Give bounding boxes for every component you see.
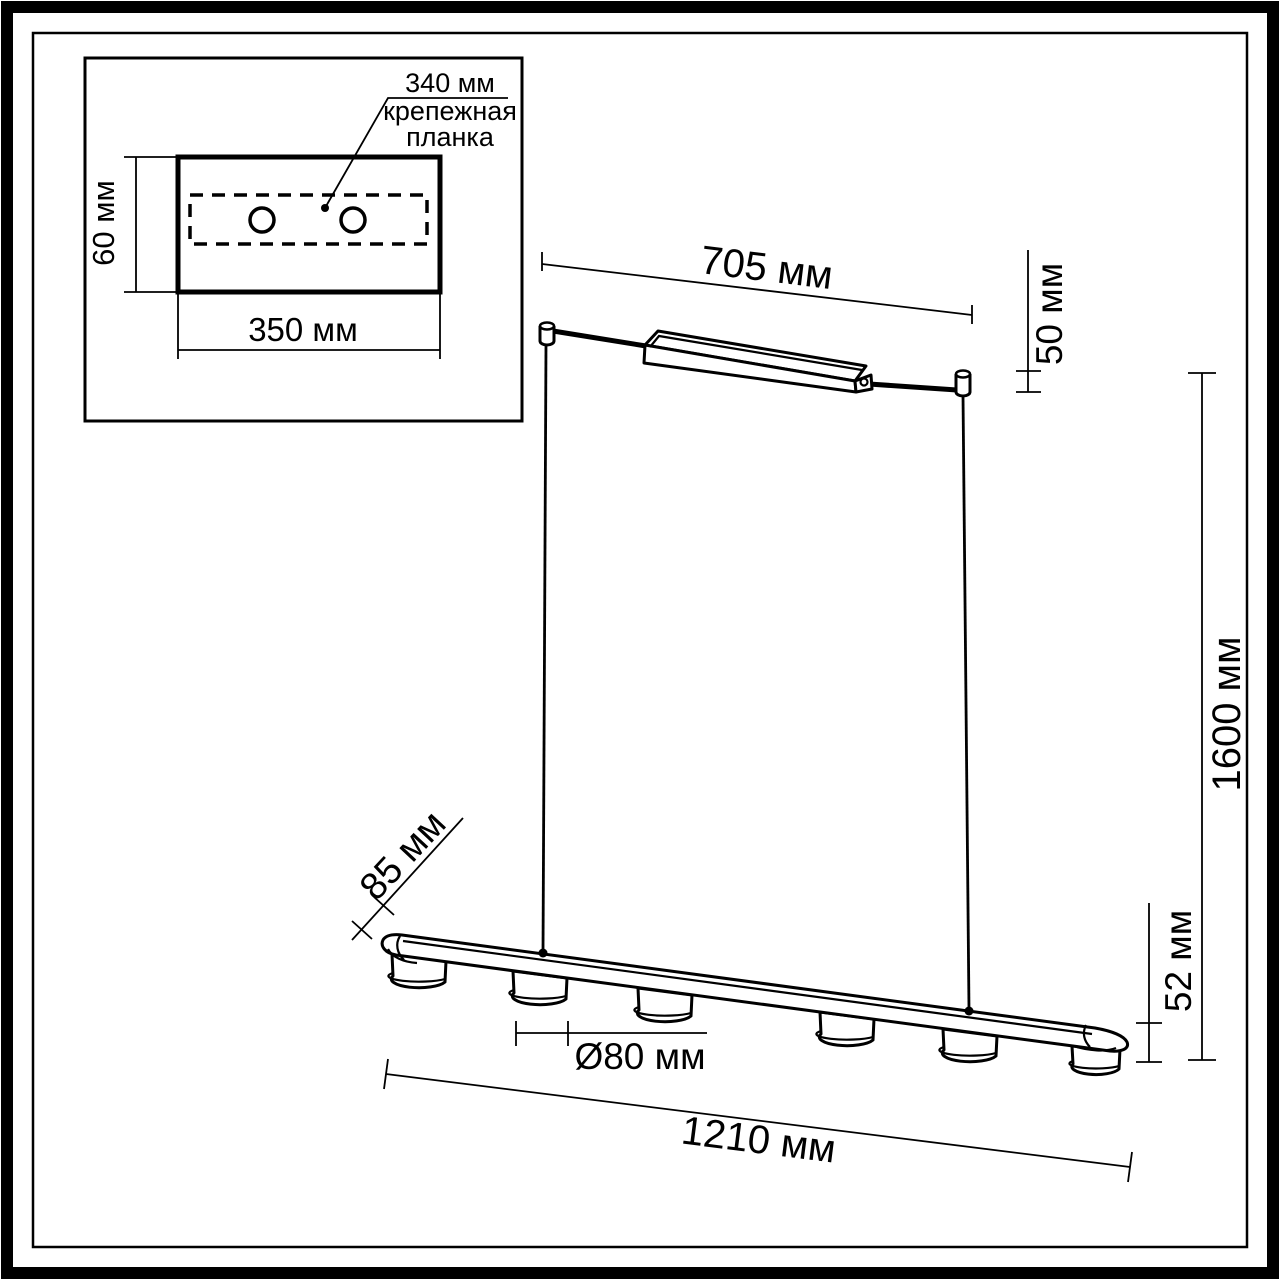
canopy-length-label: 705 мм — [698, 238, 835, 298]
mounting-plate — [178, 157, 440, 292]
suspension-wire-left — [543, 344, 546, 953]
wire-connector-right — [965, 1007, 974, 1016]
mounting-plate-inset: 340 мм крепежная планка 60 мм 350 мм — [85, 58, 522, 421]
lamp-bar-top-edge-line — [403, 941, 1092, 1034]
canopy-rod-right — [869, 384, 957, 390]
fixture-length-label: 1210 мм — [679, 1109, 838, 1172]
fixture-height-label: 52 мм — [1158, 910, 1199, 1012]
fixture-depth-label: 85 мм — [352, 803, 454, 908]
plate-height-label: 60 мм — [86, 180, 121, 266]
ceiling-canopy — [540, 323, 970, 397]
mounting-hole-right — [341, 208, 365, 232]
bracket-caption-line2: планка — [406, 122, 495, 152]
canopy-end-hole — [861, 379, 868, 386]
pendant-fixture — [382, 323, 1127, 1075]
drop-height-label: 1600 мм — [1205, 636, 1249, 791]
pendant-light-dimension-drawing: 340 мм крепежная планка 60 мм 350 мм — [0, 0, 1280, 1280]
canopy-rod-left — [553, 331, 646, 346]
technical-drawing-page: 340 мм крепежная планка 60 мм 350 мм — [0, 0, 1280, 1280]
hang-cylinder-left-top — [540, 323, 554, 330]
spotlights — [388, 954, 1120, 1075]
bracket-length-label: 340 мм — [405, 68, 495, 98]
suspension-wire-right — [963, 395, 969, 1010]
hang-cylinder-right-top — [956, 371, 970, 378]
spot-diameter-label: Ø80 мм — [574, 1036, 705, 1077]
mounting-hole-left — [250, 208, 274, 232]
canopy-height-label: 50 мм — [1029, 263, 1070, 365]
lamp-bar — [382, 935, 1127, 1052]
wire-connector-left — [539, 949, 548, 958]
plate-width-label: 350 мм — [248, 311, 358, 348]
